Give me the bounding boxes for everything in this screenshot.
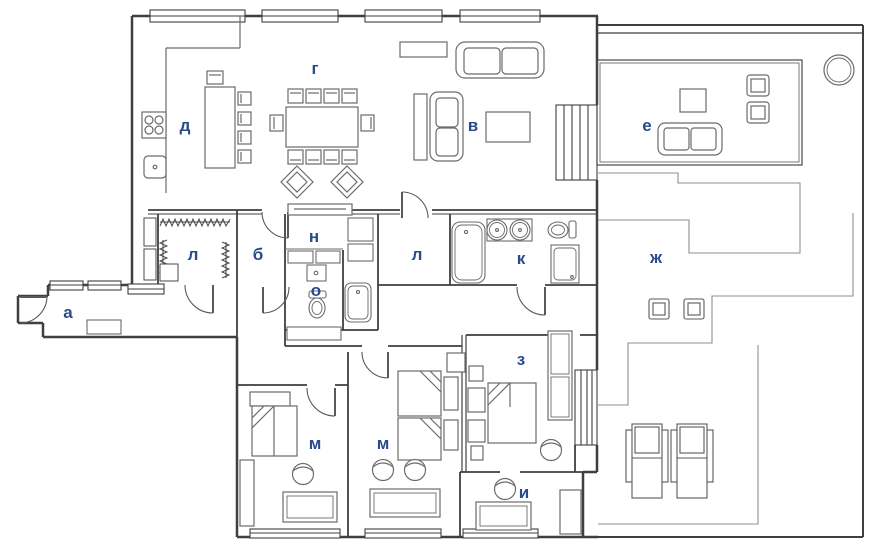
room-label-n: н xyxy=(309,227,319,246)
paving-edge-upper xyxy=(598,213,853,405)
terrace-chairs xyxy=(747,75,769,123)
wardrobe-m1 xyxy=(240,460,254,526)
entry-hall xyxy=(87,320,121,334)
door-wardrobe xyxy=(185,285,213,313)
hall-bench xyxy=(287,327,341,340)
stove-icon xyxy=(142,112,166,138)
terrace-e xyxy=(597,55,854,165)
niche-cabinet-2 xyxy=(144,249,156,280)
room-label-o: о xyxy=(311,281,321,300)
room-label-l2: л xyxy=(412,245,423,264)
wc-sink-icon xyxy=(307,265,326,281)
sun-loungers xyxy=(626,424,713,498)
shelf-z-2 xyxy=(468,388,485,412)
window-top-1 xyxy=(150,10,245,22)
sliding-door-bedroom xyxy=(575,370,597,445)
toilet-icon xyxy=(548,221,576,238)
dryer-icon xyxy=(316,251,340,263)
shelf-z-3 xyxy=(468,420,485,442)
living-area xyxy=(400,42,544,161)
door-bedroom1 xyxy=(307,388,335,416)
room-label-m1: м xyxy=(309,434,322,453)
room-label-b: б xyxy=(253,245,264,264)
room-label-e: е xyxy=(642,116,651,135)
window-entry-3 xyxy=(128,284,164,294)
bed-z xyxy=(488,383,536,443)
laundry-shelf-1 xyxy=(348,218,373,241)
chair-m2-1 xyxy=(373,460,394,481)
floor-plan-drawing: г д в е л б н л к ж о а м м з и xyxy=(0,0,884,559)
laundry-shelf-2 xyxy=(348,244,373,261)
coffee-table xyxy=(486,112,530,142)
bed-m1 xyxy=(252,406,297,456)
window-top-2 xyxy=(262,10,338,22)
bed-m2-1 xyxy=(398,371,441,416)
door-closet2 xyxy=(402,192,428,218)
window-entry-2 xyxy=(88,281,121,290)
entry-bench xyxy=(87,320,121,334)
terrace-zh xyxy=(598,173,853,524)
chair-i xyxy=(495,479,516,500)
dining-area xyxy=(270,89,374,215)
sliding-door-living xyxy=(556,105,597,180)
room-label-m2: м xyxy=(377,434,390,453)
tv-console xyxy=(288,204,352,215)
terrace-sofa xyxy=(658,123,722,155)
kitchen xyxy=(142,16,251,193)
wardrobe-z xyxy=(548,331,572,420)
room-label-z: з xyxy=(517,350,525,369)
washer-icon xyxy=(288,251,313,263)
console-table xyxy=(400,42,447,57)
dining-table xyxy=(286,107,358,147)
room-label-zh: ж xyxy=(649,248,663,267)
room-label-i: и xyxy=(519,483,529,502)
chair-m2-2 xyxy=(405,460,426,481)
bathtub-icon xyxy=(452,222,485,283)
canopy-outline xyxy=(598,173,800,253)
window-entry-1 xyxy=(50,281,83,290)
window-top-4 xyxy=(460,10,540,22)
door-bathroom xyxy=(517,287,545,315)
room-label-a: а xyxy=(63,303,73,322)
room-label-g: г xyxy=(311,59,318,78)
bedside-1 xyxy=(444,377,458,410)
headboard-shelf xyxy=(250,392,290,406)
living-sofa xyxy=(430,92,463,161)
chair-z xyxy=(541,440,562,461)
bedside-2 xyxy=(444,420,458,450)
room-label-v: в xyxy=(468,116,478,135)
round-planter-icon xyxy=(824,55,854,85)
lounge-armchairs xyxy=(281,166,363,198)
corner-sofa xyxy=(456,42,544,78)
bed-m2-2 xyxy=(398,418,441,460)
terrace-table xyxy=(680,89,706,112)
bedroom-m1 xyxy=(240,392,337,526)
wc-bathtub-icon xyxy=(345,283,371,322)
kitchen-island xyxy=(205,71,251,168)
room-label-d: д xyxy=(180,116,191,135)
door-entry xyxy=(20,296,47,323)
wardrobe-cabinet xyxy=(160,264,178,281)
cabinet-i xyxy=(560,490,581,534)
bathroom-k xyxy=(452,219,579,283)
shelf-z-4 xyxy=(471,446,483,460)
room-label-k: к xyxy=(517,249,526,268)
room-label-l1: л xyxy=(188,245,199,264)
niche-cabinet-1 xyxy=(144,218,156,246)
shower-icon xyxy=(551,245,579,283)
floor-plan: г д в е л б н л к ж о а м м з и xyxy=(0,0,884,559)
door-bedroom2 xyxy=(362,352,388,378)
laundry-wc xyxy=(285,218,373,340)
chair-m1 xyxy=(293,464,314,485)
tv-stand xyxy=(414,94,427,160)
window-bottom-1 xyxy=(250,529,340,538)
double-sink-icon xyxy=(487,219,532,241)
kitchen-sink-icon xyxy=(144,156,166,178)
window-top-3 xyxy=(365,10,442,22)
cabinet-m2 xyxy=(447,353,465,372)
window-bottom-2 xyxy=(365,529,441,538)
shelf-z-1 xyxy=(469,366,483,381)
patio-stools xyxy=(649,299,704,319)
